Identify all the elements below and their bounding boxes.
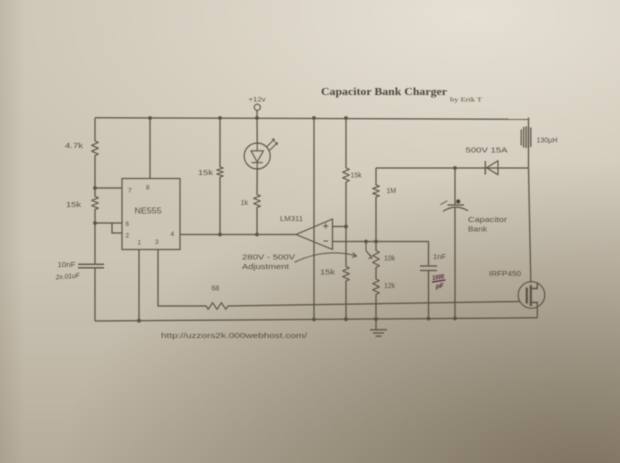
svg-text:7: 7	[128, 188, 132, 195]
svg-text:68: 68	[212, 286, 220, 293]
svg-text:4.7k: 4.7k	[65, 143, 84, 150]
svg-text:1M: 1M	[387, 188, 397, 195]
svg-text:http://uzzors2k.000webhost.com: http://uzzors2k.000webhost.com/	[161, 331, 308, 340]
svg-text:1k: 1k	[241, 200, 249, 207]
svg-text:1nF: 1nF	[433, 254, 446, 261]
svg-text:2x.01uF: 2x.01uF	[55, 272, 81, 281]
svg-text:10nF: 10nF	[58, 262, 76, 269]
svg-text:280V - 500V: 280V - 500V	[242, 255, 295, 262]
svg-text:500V 15A: 500V 15A	[466, 148, 508, 155]
svg-text:1: 1	[138, 240, 142, 247]
svg-text:by Erik T: by Erik T	[450, 97, 482, 104]
svg-text:3: 3	[155, 239, 159, 246]
svg-text:IRFP450: IRFP450	[489, 269, 521, 278]
svg-text:8: 8	[146, 185, 150, 192]
svg-text:2: 2	[126, 233, 130, 240]
svg-text:+12v: +12v	[249, 97, 267, 104]
svg-text:LM311: LM311	[280, 216, 303, 223]
svg-text:Bank: Bank	[468, 224, 487, 233]
svg-text:10k: 10k	[384, 256, 396, 263]
svg-text:NE555: NE555	[135, 207, 163, 216]
svg-text:15k: 15k	[66, 202, 82, 209]
svg-text:15k: 15k	[351, 173, 363, 180]
svg-text:4: 4	[171, 231, 175, 238]
svg-text:15k: 15k	[320, 270, 336, 277]
svg-text:12k: 12k	[384, 283, 396, 290]
svg-text:pF: pF	[434, 282, 445, 290]
svg-text:Capacitor Bank Charger: Capacitor Bank Charger	[321, 87, 448, 98]
svg-text:15k: 15k	[198, 170, 214, 177]
svg-text:130µH: 130µH	[537, 138, 558, 145]
svg-text:Adjustment: Adjustment	[242, 264, 289, 271]
svg-text:Capacitor: Capacitor	[468, 215, 508, 224]
svg-text:6: 6	[126, 221, 130, 228]
